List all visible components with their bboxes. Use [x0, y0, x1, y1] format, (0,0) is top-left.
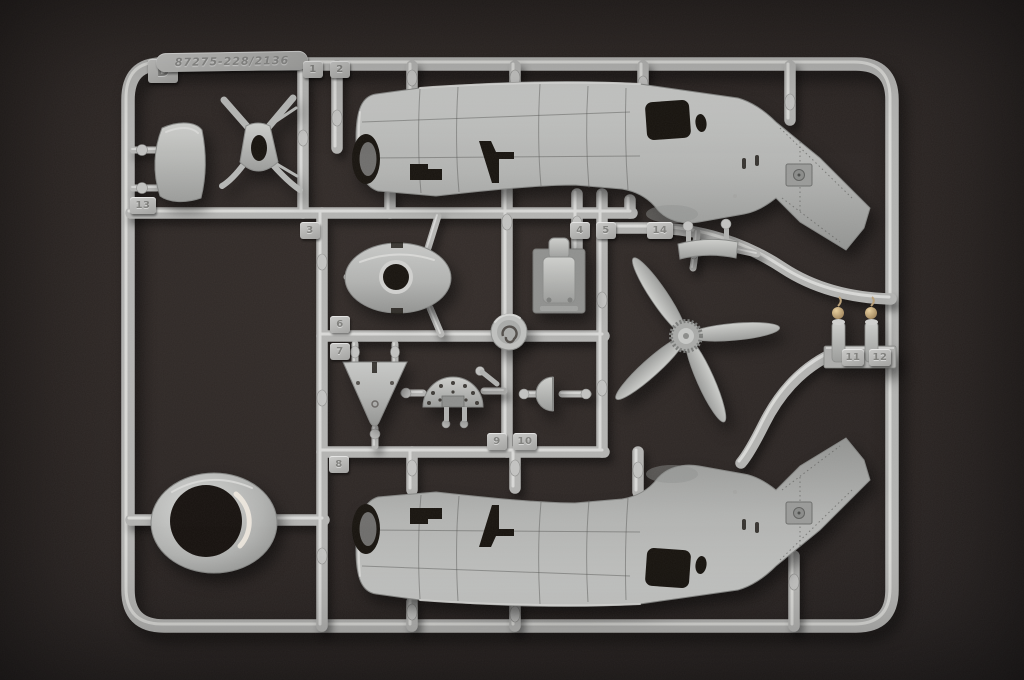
part-tag-5: 5: [596, 222, 616, 239]
model-kit-sprue-photo: D 87275-228/2136 1213345146711129108: [0, 0, 1024, 680]
part-tag-1: 1: [303, 61, 323, 78]
part-tag-9: 9: [487, 433, 507, 450]
mold-number-text: 87275-228/2136: [156, 51, 308, 73]
part-tag-4: 4: [570, 222, 590, 239]
part-tag-12: 12: [869, 349, 891, 366]
part-tag-13: 13: [130, 197, 156, 214]
part-tag-6: 6: [330, 316, 350, 333]
photo-grain-overlay: [0, 0, 1024, 680]
part-tag-2: 2: [330, 61, 350, 78]
sprue-artwork: [0, 0, 1024, 680]
part-tag-11: 11: [842, 349, 864, 366]
part-tag-10: 10: [513, 433, 537, 450]
part-tag-7: 7: [330, 343, 350, 360]
part-tag-8: 8: [329, 456, 349, 473]
part-tag-14: 14: [647, 222, 673, 239]
part-tag-3: 3: [300, 222, 320, 239]
